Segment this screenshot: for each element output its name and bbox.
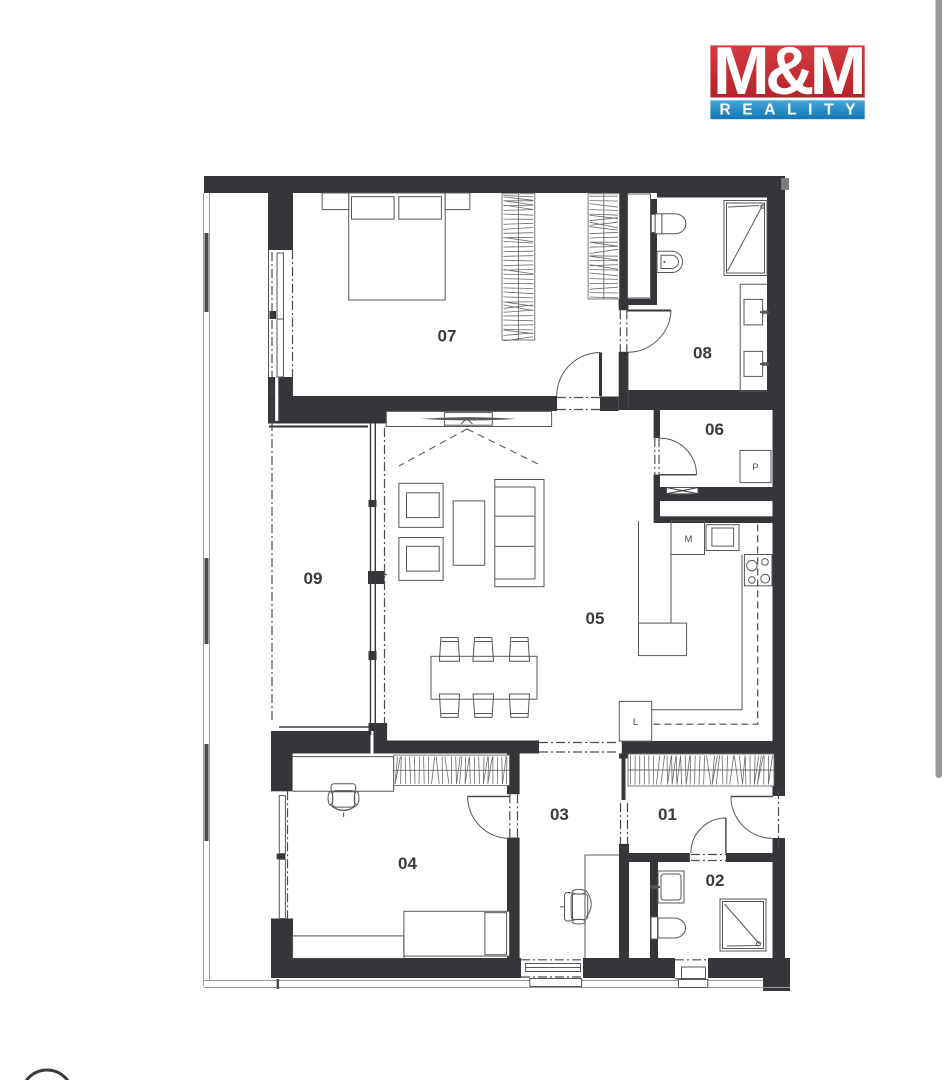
svg-text:01: 01	[658, 805, 677, 824]
svg-text:P: P	[752, 462, 758, 473]
svg-text:05: 05	[586, 609, 605, 628]
svg-text:06: 06	[705, 420, 724, 439]
svg-text:07: 07	[438, 327, 457, 346]
svg-text:M&M: M&M	[713, 33, 863, 109]
svg-text:04: 04	[398, 854, 417, 873]
svg-text:L: L	[633, 717, 638, 728]
svg-text:08: 08	[693, 344, 712, 363]
svg-text:03: 03	[550, 805, 569, 824]
svg-text:M: M	[685, 534, 693, 545]
svg-text:02: 02	[706, 871, 725, 890]
svg-text:09: 09	[304, 569, 323, 588]
